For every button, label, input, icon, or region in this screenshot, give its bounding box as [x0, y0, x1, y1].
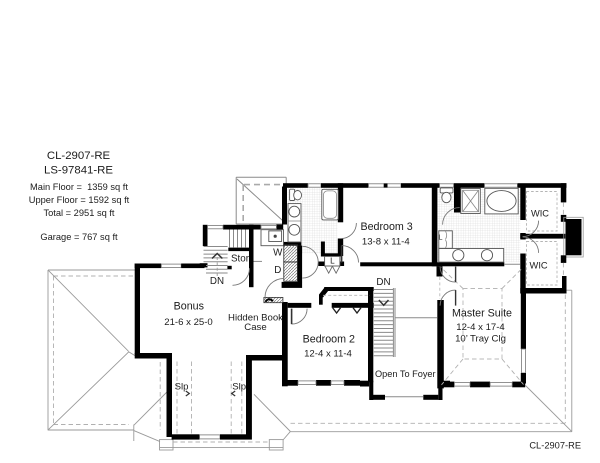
svg-text:Bedroom 2: Bedroom 2	[303, 334, 355, 346]
svg-text:Slp: Slp	[175, 381, 189, 392]
svg-text:Open To Foyer: Open To Foyer	[375, 369, 436, 379]
svg-text:CL-2907-RE: CL-2907-RE	[529, 440, 581, 450]
svg-text:D: D	[274, 265, 281, 276]
svg-text:12-4 x 17-4: 12-4 x 17-4	[456, 322, 505, 333]
svg-text:DN: DN	[210, 276, 224, 287]
svg-text:L: L	[330, 256, 335, 265]
svg-text:Upper Floor = 1592 sq ft: Upper Floor = 1592 sq ft	[29, 195, 130, 205]
svg-text:10’ Tray Clg: 10’ Tray Clg	[455, 333, 506, 344]
svg-text:Main Floor = 1359 sq ft: Main Floor = 1359 sq ft	[30, 182, 128, 192]
svg-text:Master Suite: Master Suite	[452, 308, 512, 320]
svg-text:Garage = 767 sq ft: Garage = 767 sq ft	[40, 232, 118, 242]
svg-text:Bedroom 3: Bedroom 3	[360, 221, 412, 233]
svg-text:WIC: WIC	[530, 260, 548, 270]
svg-text:LS-97841-RE: LS-97841-RE	[44, 164, 113, 176]
svg-text:DN: DN	[376, 277, 390, 288]
svg-text:21-6 x 25-0: 21-6 x 25-0	[164, 317, 213, 328]
svg-text:Stor: Stor	[231, 253, 250, 264]
svg-text:12-4 x 11-4: 12-4 x 11-4	[304, 348, 352, 359]
svg-text:Bonus: Bonus	[174, 301, 204, 313]
svg-text:Slp: Slp	[232, 381, 246, 392]
svg-text:Case: Case	[244, 322, 266, 333]
svg-text:Total = 2951 sq ft: Total = 2951 sq ft	[43, 208, 114, 218]
svg-text:W: W	[273, 247, 283, 258]
svg-text:WIC: WIC	[531, 208, 549, 218]
svg-text:13-8 x 11-4: 13-8 x 11-4	[362, 237, 410, 248]
svg-text:L: L	[438, 233, 442, 242]
svg-text:CL-2907-RE: CL-2907-RE	[47, 150, 111, 162]
